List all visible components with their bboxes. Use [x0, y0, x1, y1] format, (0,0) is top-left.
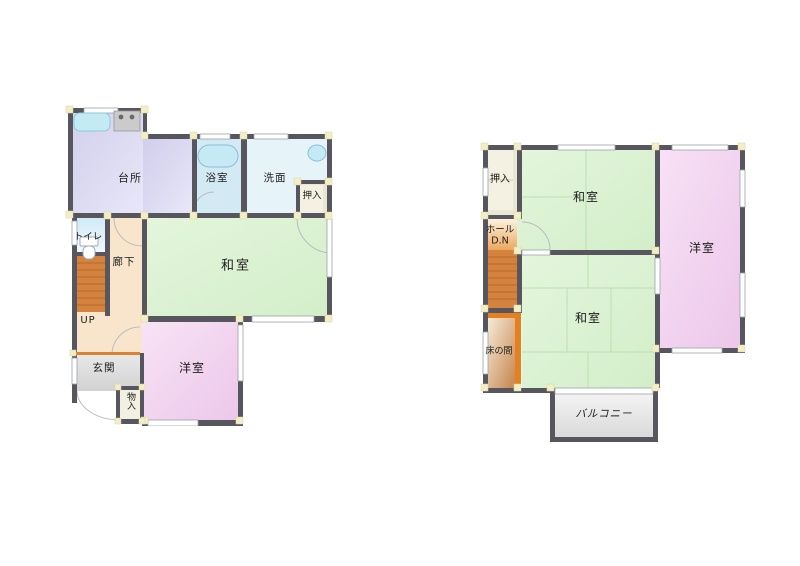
floor2-graphics [478, 140, 750, 445]
tokonoma-strip-top [483, 313, 521, 318]
label-kitchen: 台所 [118, 173, 142, 184]
label-washroom: 洗面 [264, 173, 287, 184]
label-tatami-1f: 和室 [221, 260, 251, 273]
label-hallway: 廊下 [113, 257, 136, 268]
kitchen-sink-icon [74, 113, 110, 131]
label-stairs-up: UP [80, 316, 95, 326]
label-western-2f: 洋室 [689, 242, 715, 254]
bathtub-icon [198, 145, 238, 167]
label-closet-2f: 押入 [490, 175, 510, 185]
floor1-plan: 台所 浴室 洗面 押入 トイレ 廊下 和室 UP 玄関 物入 洋室 [64, 104, 338, 426]
floor2-plan: 押入 和室 洋室 ホール D.N 床の間 和室 バルコニー [478, 140, 750, 445]
label-storage: 物入 [125, 392, 134, 410]
floor-plan-canvas: 台所 浴室 洗面 押入 トイレ 廊下 和室 UP 玄関 物入 洋室 [0, 0, 800, 566]
label-western-1f: 洋室 [179, 362, 205, 374]
label-bathroom: 浴室 [206, 173, 229, 184]
stairs-2f [485, 250, 517, 308]
stove-icon [114, 111, 140, 131]
label-closet-1f: 押入 [302, 191, 321, 201]
label-toilet: トイレ [74, 232, 103, 242]
tokonoma-strip-right [515, 318, 521, 388]
room-kitchen-east [143, 139, 192, 215]
label-stairs-down: D.N [491, 236, 508, 246]
label-entrance: 玄関 [93, 363, 116, 374]
floor1-graphics [64, 104, 338, 426]
label-balcony: バルコニー [575, 409, 632, 420]
entrance-step-line [72, 352, 140, 355]
washbasin-icon [308, 145, 326, 161]
label-tokonoma: 床の間 [485, 348, 512, 357]
label-tatami-2f-north: 和室 [573, 191, 599, 203]
label-tatami-2f-south: 和室 [575, 312, 601, 324]
label-hall: ホール [486, 225, 515, 235]
